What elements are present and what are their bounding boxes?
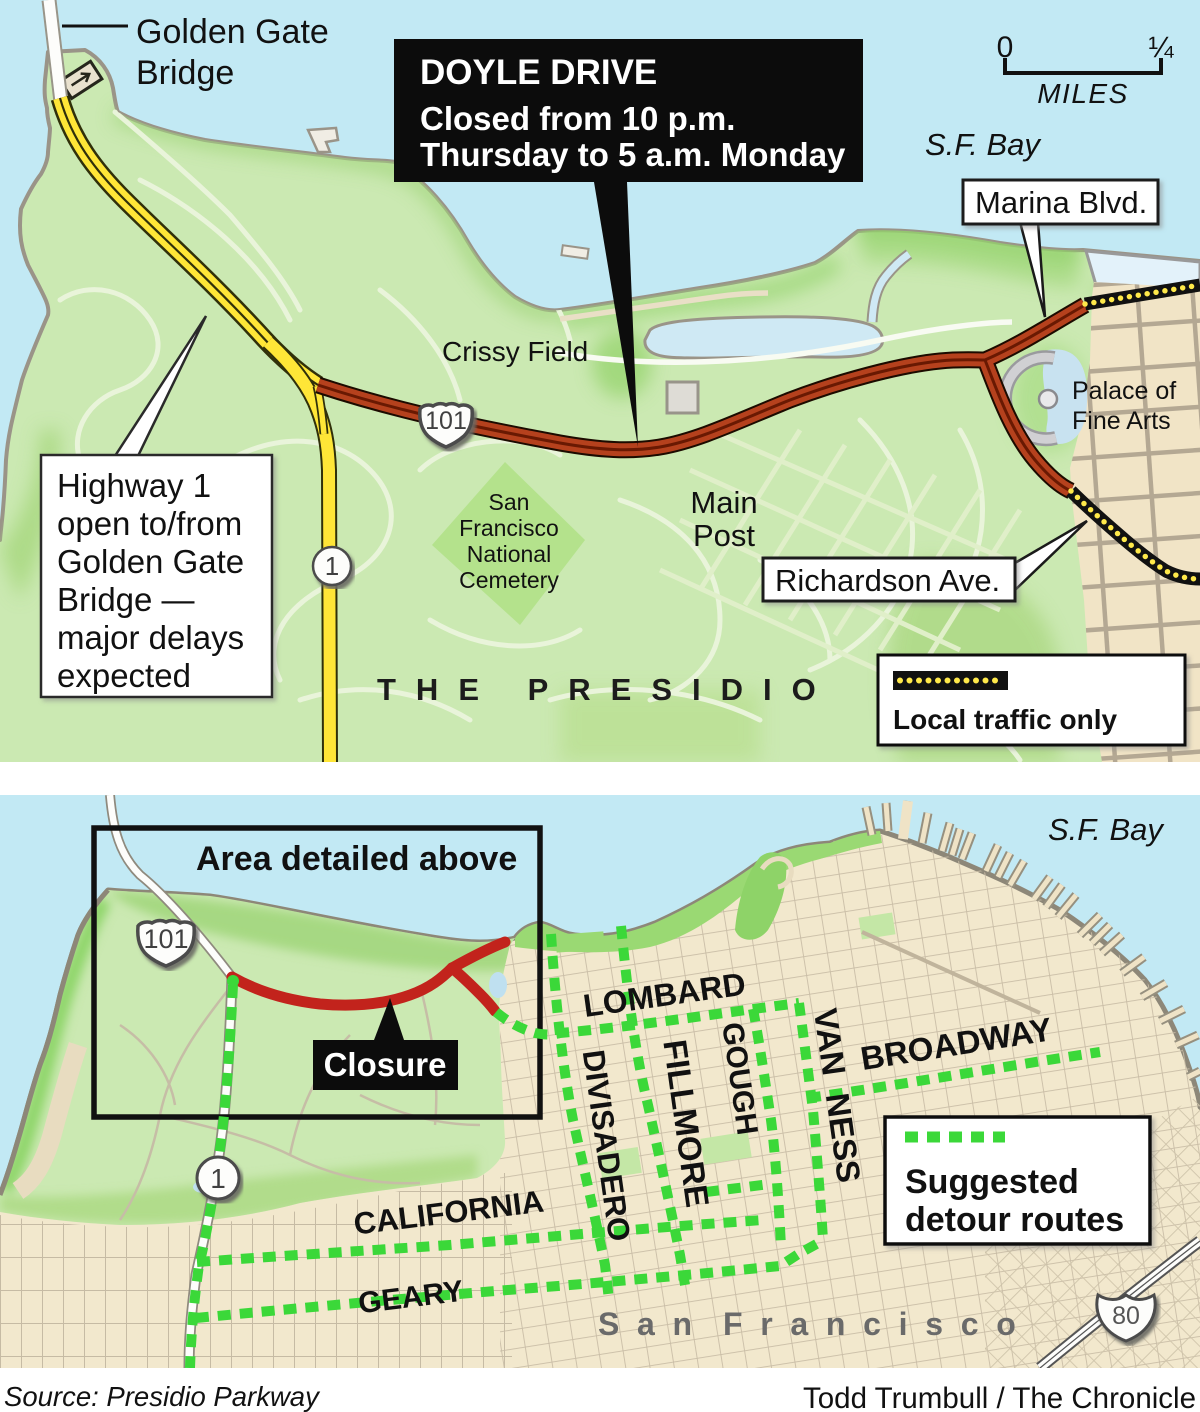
svg-text:San: San (489, 489, 530, 515)
svg-text:Thursday to 5 a.m. Monday: Thursday to 5 a.m. Monday (420, 136, 846, 173)
svg-text:Francisco: Francisco (459, 515, 559, 541)
svg-text:101: 101 (143, 924, 188, 954)
svg-text:detour routes: detour routes (905, 1201, 1124, 1239)
svg-text:S.F. Bay: S.F. Bay (925, 127, 1042, 162)
svg-text:S.F. Bay: S.F. Bay (1048, 812, 1165, 847)
svg-text:major delays: major delays (57, 619, 244, 656)
svg-text:Golden Gate: Golden Gate (57, 543, 244, 580)
svg-text:Post: Post (693, 518, 755, 553)
svg-text:Area detailed above: Area detailed above (196, 840, 517, 878)
svg-text:Closure: Closure (324, 1046, 447, 1083)
svg-text:Bridge: Bridge (136, 54, 234, 92)
svg-text:Golden Gate: Golden Gate (136, 13, 329, 51)
svg-text:S a n F r a n c i s c o: S a n F r a n c i s c o (598, 1306, 1020, 1342)
svg-text:Local traffic only: Local traffic only (893, 704, 1117, 735)
svg-text:0: 0 (997, 31, 1014, 64)
svg-text:Closed from 10 p.m.: Closed from 10 p.m. (420, 100, 735, 137)
svg-text:expected: expected (57, 657, 191, 694)
svg-text:Palace of: Palace of (1072, 377, 1176, 405)
svg-text:Fine Arts: Fine Arts (1072, 407, 1171, 435)
svg-text:Marina Blvd.: Marina Blvd. (975, 185, 1147, 220)
svg-text:80: 80 (1112, 1302, 1140, 1330)
svg-text:1: 1 (210, 1163, 226, 1194)
svg-text:1: 1 (325, 551, 339, 581)
svg-text:Crissy Field: Crissy Field (442, 336, 588, 367)
svg-text:Richardson Ave.: Richardson Ave. (775, 563, 1000, 598)
svg-text:Bridge —: Bridge — (57, 581, 195, 618)
svg-text:Cemetery: Cemetery (459, 567, 559, 593)
svg-text:National: National (467, 541, 551, 567)
svg-text:Suggested: Suggested (905, 1163, 1079, 1201)
svg-text:Main: Main (690, 485, 757, 520)
svg-text:MILES: MILES (1037, 78, 1129, 109)
svg-text:Highway 1: Highway 1 (57, 467, 211, 504)
svg-text:101: 101 (425, 407, 467, 435)
svg-text:THE PRESIDIO: THE PRESIDIO (377, 672, 836, 707)
svg-text:DOYLE DRIVE: DOYLE DRIVE (420, 53, 657, 92)
svg-text:open to/from: open to/from (57, 505, 242, 542)
svg-text:¼: ¼ (1148, 31, 1174, 64)
